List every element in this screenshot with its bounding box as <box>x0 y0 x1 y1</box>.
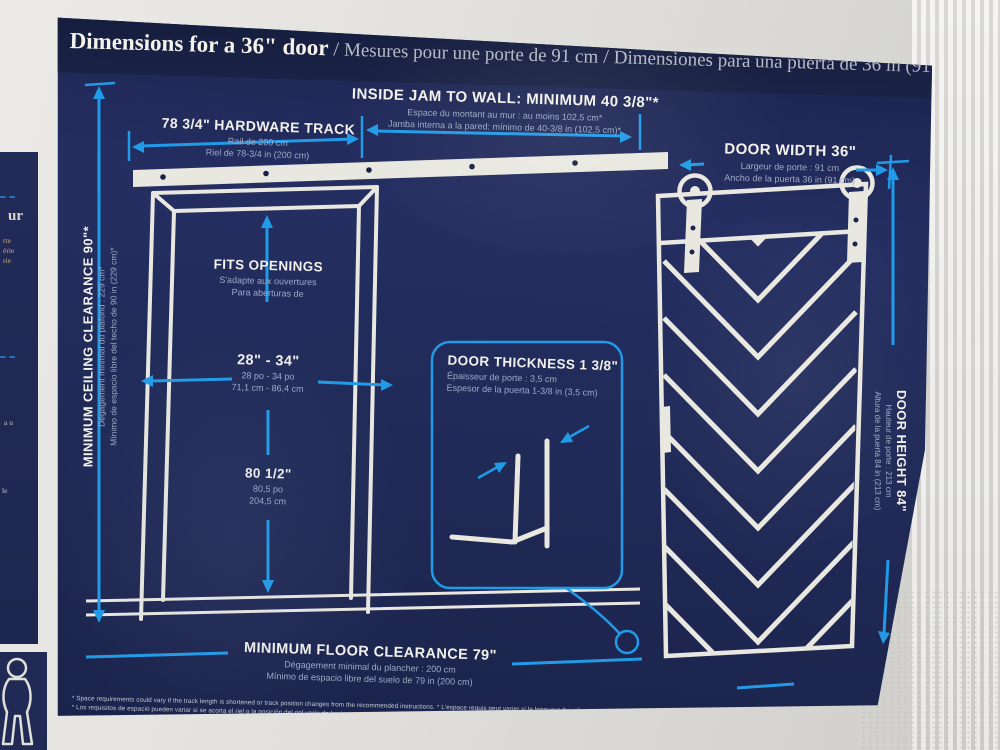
detail-callout-circle <box>616 631 638 653</box>
door-handle <box>662 406 671 453</box>
left-roller-wheel <box>680 176 711 274</box>
fragment-text: le <box>2 486 7 495</box>
adjacent-panel-figure <box>0 652 47 750</box>
ceiling-clearance-label: MINIMUM CEILING CLEARANCE 90"* Dégagemen… <box>80 147 119 547</box>
fragment-text: a u <box>4 418 13 427</box>
person-outline-icon <box>0 652 47 750</box>
door-height-label: DOOR HEIGHT 84" Hauteur de porte : 213 c… <box>871 301 909 601</box>
opening-height-label: 80 1/2" 80,5 po 204,5 cm <box>197 464 338 509</box>
floor-lines <box>86 589 640 615</box>
dimensions-panel: Dimensions for a 36" door / Mesures pour… <box>56 12 932 718</box>
fragment-text: ur <box>8 208 23 225</box>
thickness-pointer-arrows <box>478 426 589 478</box>
adjacent-panel-fragment: ur rte érie rie a u le <box>0 152 38 644</box>
package-photo: ur rte érie rie a u le <box>0 0 1000 750</box>
title-separator: / <box>598 46 614 68</box>
door-corner-section <box>452 441 547 546</box>
fragment-text: rte érie rie <box>3 236 14 265</box>
dash-line <box>0 196 15 198</box>
door-thickness-label: DOOR THICKNESS 1 3/8" Épaisseur de porte… <box>446 353 642 401</box>
door-frame-drawing <box>141 187 377 619</box>
door-width-label: DOOR WIDTH 36" Largeur de porte : 91 cm … <box>665 139 916 188</box>
dash-line <box>0 356 15 358</box>
fits-openings-label: FITS OPENINGS S'adapte aux ouvertures Pa… <box>162 255 373 302</box>
title-separator: / <box>328 38 344 60</box>
opening-range-label: 28" - 34" 28 po - 34 po 71,1 cm - 86,4 c… <box>182 350 353 397</box>
